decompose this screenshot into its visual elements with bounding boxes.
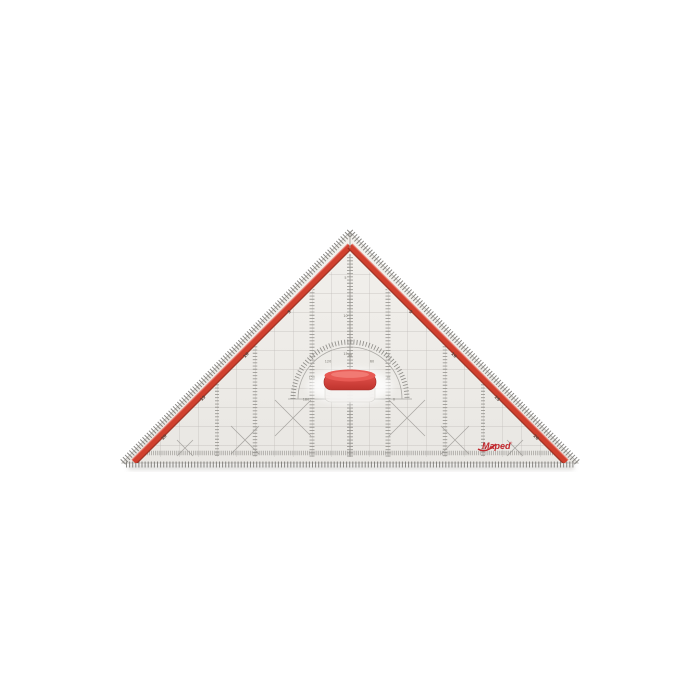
product-photo: 1801501209060300 11109876543210123456789… bbox=[0, 0, 700, 700]
handle-knob-highlight bbox=[331, 371, 369, 378]
set-square-image: 1801501209060300 11109876543210123456789… bbox=[0, 0, 700, 700]
scale-number: 5 bbox=[344, 276, 346, 280]
scale-number: 180 bbox=[303, 398, 309, 402]
scale-number: 15 bbox=[343, 352, 347, 356]
scale-number: 10 bbox=[343, 314, 347, 318]
scale-number: 0 bbox=[393, 398, 395, 402]
handle bbox=[308, 369, 392, 403]
maped-logo: Maped ® bbox=[478, 441, 513, 451]
scale-number: 90 bbox=[348, 354, 352, 358]
logo-wordmark: Maped bbox=[482, 441, 511, 451]
scale-number: 60 bbox=[370, 359, 374, 363]
scale-number: 120 bbox=[325, 359, 331, 363]
